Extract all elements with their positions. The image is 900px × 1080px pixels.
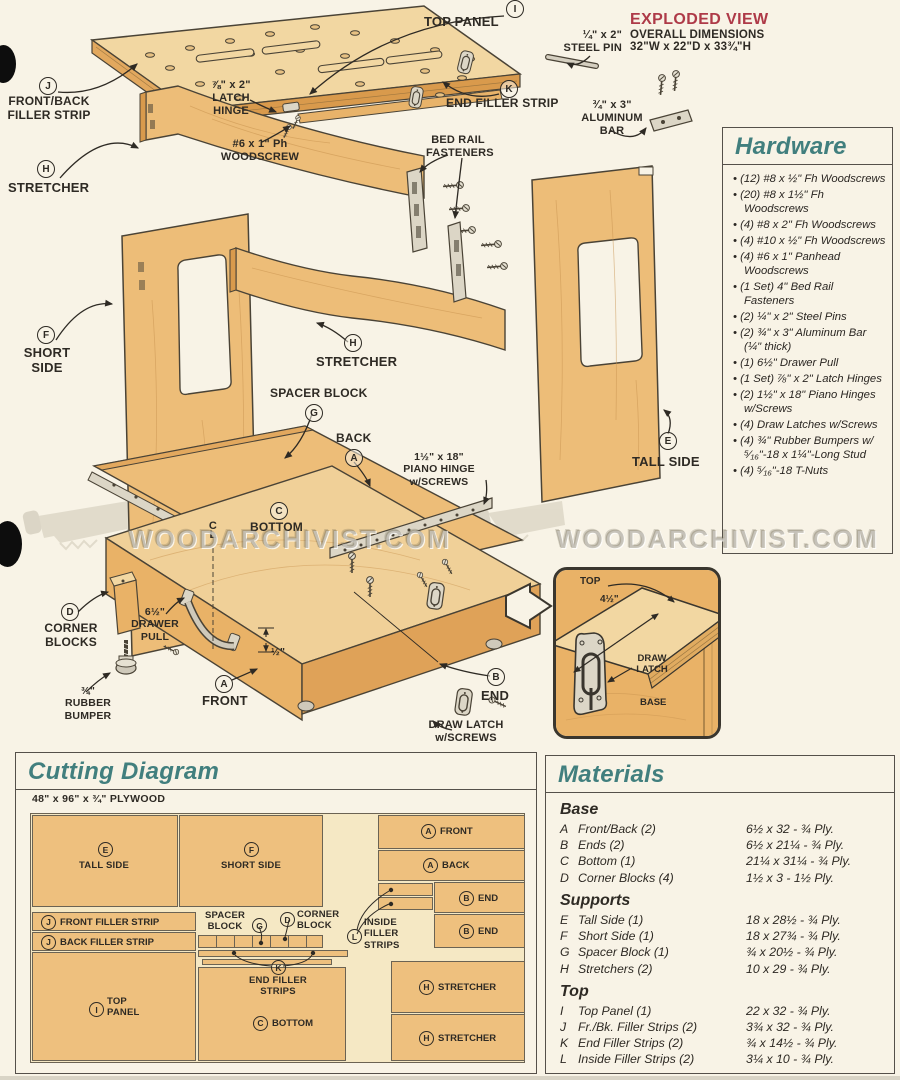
inset-dim-label: 4½": [600, 594, 619, 606]
inset-top-label: TOP: [580, 576, 600, 588]
materials-letter: J: [560, 1019, 578, 1035]
sheet-letter-corner-block: D: [280, 912, 295, 927]
sheet-label-front-text: FRONT: [440, 826, 473, 837]
materials-dims: 10 x 29 - ¾ Ply.: [746, 961, 880, 977]
sheet-letter-short-side: F: [244, 842, 259, 857]
sheet-label-corner-block: CORNER BLOCK: [297, 909, 349, 932]
materials-letter: H: [560, 961, 578, 977]
hardware-item: (4) Draw Latches w/Screws: [733, 418, 886, 432]
sheet-label-end-2: B END: [459, 924, 498, 939]
materials-dims: 3¼ x 10 - ¾ Ply.: [746, 1051, 880, 1067]
hardware-item: (4) #8 x 2" Fh Woodscrews: [733, 218, 886, 232]
plywood-sheet-label: 48" x 96" x ¾" PLYWOOD: [32, 793, 536, 805]
materials-dims: ¾ x 20½ - ¾ Ply.: [746, 944, 880, 960]
hardware-item: (1 Set) 4" Bed Rail Fasteners: [733, 280, 886, 308]
callout-top-panel: TOP PANEL: [424, 14, 499, 29]
callout-front: FRONT: [202, 693, 248, 708]
sheet-label-back: A BACK: [423, 858, 469, 873]
callout-short-side: SHORT SIDE: [20, 345, 74, 376]
materials-title: Materials: [546, 756, 894, 793]
materials-letter: G: [560, 944, 578, 960]
sheet-letter-back-filler: J: [41, 935, 56, 950]
sheet-letter-spacer-block: G: [252, 918, 267, 933]
materials-part-name: Top Panel (1): [578, 1003, 746, 1019]
materials-row: I Top Panel (1) 22 x 32 - ¾ Ply.: [560, 1003, 880, 1019]
sheet-label-end-1-text: END: [478, 893, 498, 904]
aluminum-bar-shape: [650, 70, 692, 131]
materials-dims: 18 x 28½ - ¾ Ply.: [746, 912, 880, 928]
materials-section-supports: Supports: [560, 892, 880, 910]
sheet-letter-end-1: B: [459, 891, 474, 906]
callout-drawer-pull: 6½" DRAWER PULL: [126, 606, 184, 643]
callout-corner-blocks: CORNER BLOCKS: [38, 621, 104, 649]
callout-half-inch-dim: ½": [271, 646, 285, 658]
watermark-text: WOODARCHIVIST.COM: [556, 524, 879, 555]
materials-letter: C: [560, 853, 578, 869]
callout-letter-spacer-block: G: [305, 404, 323, 422]
sheet-label-inside-filler: INSIDE FILLER STRIPS: [364, 917, 400, 951]
callout-latch-hinge: ⅞" x 2" LATCH HINGE: [194, 79, 268, 118]
sheet-letter-front-filler: J: [41, 915, 56, 930]
callout-aluminum-bar: ¾" x 3" ALUMINUM BAR: [580, 99, 644, 138]
inset-draw-latch-label: DRAW LATCH: [628, 654, 676, 676]
hardware-title: Hardware: [723, 128, 892, 165]
callout-letter-short-side: F: [37, 326, 55, 344]
sheet-label-back-filler: J BACK FILLER STRIP: [41, 935, 154, 950]
materials-letter: B: [560, 837, 578, 853]
materials-row: B Ends (2) 6½ x 21¼ - ¾ Ply.: [560, 837, 880, 853]
materials-letter: F: [560, 928, 578, 944]
inset-base-label: BASE: [640, 698, 666, 709]
cutting-diagram-title: Cutting Diagram: [16, 753, 536, 790]
materials-row: K End Filler Strips (2) ¾ x 14½ - ¾ Ply.: [560, 1035, 880, 1051]
sheet-label-stretcher-1-text: STRETCHER: [438, 982, 496, 993]
sheet-letter-back: A: [423, 858, 438, 873]
materials-part-name: End Filler Strips (2): [578, 1035, 746, 1051]
sheet-label-spacer-block: SPACER BLOCK: [199, 910, 251, 933]
materials-dims: 1½ x 3 - 1½ Ply.: [746, 870, 880, 886]
materials-section-base: Base: [560, 801, 880, 819]
sheet-label-front-filler: J FRONT FILLER STRIP: [41, 915, 159, 930]
callout-letter-bottom: C: [270, 502, 288, 520]
hardware-item: (1 Set) ⅞" x 2" Latch Hinges: [733, 372, 886, 386]
bed-rail-fasteners-shape: [407, 168, 508, 302]
sheet-label-bottom-text: BOTTOM: [272, 1018, 313, 1029]
sheet-letter-stretcher-2: H: [419, 1031, 434, 1046]
callout-tall-side: TALL SIDE: [632, 454, 700, 469]
callout-letter-tall-side: E: [659, 432, 677, 450]
callout-piano-hinge: 1½" x 18" PIANO HINGE w/SCREWS: [396, 451, 482, 488]
overall-dimensions-label: OVERALL DIMENSIONS: [630, 29, 764, 41]
sheet-label-back-text: BACK: [442, 860, 469, 871]
sheet-label-front-filler-text: FRONT FILLER STRIP: [60, 917, 159, 928]
hardware-item: (2) ¼" x 2" Steel Pins: [733, 310, 886, 324]
materials-part-name: Tall Side (1): [578, 912, 746, 928]
materials-part-name: Front/Back (2): [578, 821, 746, 837]
materials-part-name: Stretchers (2): [578, 961, 746, 977]
callout-letter-front: A: [215, 675, 233, 693]
materials-row: A Front/Back (2) 6½ x 32 - ¾ Ply.: [560, 821, 880, 837]
hardware-item: (2) ¾" x 3" Aluminum Bar (¼" thick): [733, 326, 886, 354]
callout-letter-front-back-filler: J: [39, 77, 57, 95]
hardware-item: (4) ¾" Rubber Bumpers w/⁵⁄₁₆"-18 x 1¼"-L…: [733, 434, 886, 462]
materials-dims: ¾ x 14½ - ¾ Ply.: [746, 1035, 880, 1051]
overall-dimensions-value: 32"W x 22"D x 33¾"H: [630, 41, 751, 53]
materials-row: D Corner Blocks (4) 1½ x 3 - 1½ Ply.: [560, 870, 880, 886]
materials-letter: A: [560, 821, 578, 837]
materials-dims: 18 x 27¾ - ¾ Ply.: [746, 928, 880, 944]
callout-letter-stretcher-left: H: [37, 160, 55, 178]
materials-part-name: Spacer Block (1): [578, 944, 746, 960]
materials-row: C Bottom (1) 21¼ x 31¼ - ¾ Ply.: [560, 853, 880, 869]
sheet-label-top-panel: TOP PANEL: [107, 996, 140, 1019]
materials-letter: D: [560, 870, 578, 886]
sheet-label-bottom: C BOTTOM: [253, 1016, 313, 1031]
materials-row: J Fr./Bk. Filler Strips (2) 3¾ x 32 - ¾ …: [560, 1019, 880, 1035]
materials-dims: 21¼ x 31¼ - ¾ Ply.: [746, 853, 880, 869]
sheet-letter-inside-filler: L: [347, 929, 362, 944]
materials-dims: 6½ x 21¼ - ¾ Ply.: [746, 837, 880, 853]
detail-inset: TOP 4½" DRAW LATCH BASE: [553, 567, 721, 739]
callout-spacer-block: SPACER BLOCK: [270, 386, 368, 400]
hardware-item: (4) #6 x 1" Panhead Woodscrews: [733, 250, 886, 278]
callout-back: BACK: [336, 431, 371, 445]
sheet-letter-front: A: [421, 824, 436, 839]
materials-part-name: Short Side (1): [578, 928, 746, 944]
materials-body: Base A Front/Back (2) 6½ x 32 - ¾ Ply. B…: [546, 793, 894, 1070]
plan-page: EXPLODED VIEW OVERALL DIMENSIONS 32"W x …: [0, 0, 900, 1080]
materials-letter: L: [560, 1051, 578, 1067]
callout-stretcher-mid: STRETCHER: [316, 354, 397, 369]
sheet-label-back-filler-text: BACK FILLER STRIP: [60, 937, 154, 948]
sheet-label-end-filler: END FILLER STRIPS: [245, 975, 311, 998]
page-bottom-edge: [0, 1076, 900, 1080]
sheet-label-end-2-text: END: [478, 926, 498, 937]
watermark-text: WOODARCHIVIST.COM: [128, 524, 451, 555]
sheet-letter-stretcher-1: H: [419, 980, 434, 995]
sheet-label-stretcher-2-text: STRETCHER: [438, 1033, 496, 1044]
exploded-view-title: EXPLODED VIEW: [630, 11, 769, 29]
callout-letter-end: B: [487, 668, 505, 686]
materials-panel: Materials Base A Front/Back (2) 6½ x 32 …: [545, 755, 895, 1074]
callout-letter-back: A: [345, 449, 363, 467]
materials-letter: I: [560, 1003, 578, 1019]
callout-end: END: [481, 688, 509, 703]
callout-letter-stretcher-mid: H: [344, 334, 362, 352]
callout-letter-corner-blocks: D: [61, 603, 79, 621]
hardware-item: (4) ⁵⁄₁₆"-18 T-Nuts: [733, 464, 886, 478]
callout-front-back-filler: FRONT/BACK FILLER STRIP: [2, 94, 96, 122]
sheet-label-short-side: SHORT SIDE: [179, 860, 323, 871]
sheet-letter-tall-side: E: [98, 842, 113, 857]
materials-dims: 6½ x 32 - ¾ Ply.: [746, 821, 880, 837]
callout-bed-rail-fasteners: BED RAIL FASTENERS: [426, 134, 490, 160]
sheet-label-tall-side: TALL SIDE: [31, 860, 177, 871]
callout-steel-pin: ¼" x 2" STEEL PIN: [556, 29, 622, 55]
materials-row: L Inside Filler Strips (2) 3¼ x 10 - ¾ P…: [560, 1051, 880, 1067]
materials-dims: 22 x 32 - ¾ Ply.: [746, 1003, 880, 1019]
materials-row: H Stretchers (2) 10 x 29 - ¾ Ply.: [560, 961, 880, 977]
callout-letter-top-panel: I: [506, 0, 524, 18]
sheet-letter-end-2: B: [459, 924, 474, 939]
callout-end-filler-strip: END FILLER STRIP: [446, 96, 559, 110]
materials-row: E Tall Side (1) 18 x 28½ - ¾ Ply.: [560, 912, 880, 928]
sheet-label-end-1: B END: [459, 891, 498, 906]
materials-part-name: Inside Filler Strips (2): [578, 1051, 746, 1067]
materials-part-name: Ends (2): [578, 837, 746, 853]
materials-letter: E: [560, 912, 578, 928]
materials-part-name: Fr./Bk. Filler Strips (2): [578, 1019, 746, 1035]
hardware-item: (20) #8 x 1½" Fh Woodscrews: [733, 188, 886, 216]
sheet-label-front: A FRONT: [421, 824, 473, 839]
plywood-sheet: E TALL SIDE F SHORT SIDE A FRONT A BACK …: [30, 813, 525, 1063]
materials-dims: 3¾ x 32 - ¾ Ply.: [746, 1019, 880, 1035]
materials-letter: K: [560, 1035, 578, 1051]
materials-part-name: Corner Blocks (4): [578, 870, 746, 886]
callout-woodscrew: #6 x 1" Ph WOODSCREW: [220, 138, 300, 164]
hardware-item: (1) 6½" Drawer Pull: [733, 356, 886, 370]
hardware-list: (12) #8 x ½" Fh Woodscrews (20) #8 x 1½"…: [723, 172, 892, 478]
sheet-label-stretcher-2: H STRETCHER: [419, 1031, 496, 1046]
hardware-item: (12) #8 x ½" Fh Woodscrews: [733, 172, 886, 186]
materials-row: G Spacer Block (1) ¾ x 20½ - ¾ Ply.: [560, 944, 880, 960]
callout-rubber-bumper: ¾" RUBBER BUMPER: [58, 685, 118, 722]
hardware-item: (4) #10 x ½" Fh Woodscrews: [733, 234, 886, 248]
callout-stretcher-left: STRETCHER: [8, 180, 89, 195]
materials-row: F Short Side (1) 18 x 27¾ - ¾ Ply.: [560, 928, 880, 944]
materials-part-name: Bottom (1): [578, 853, 746, 869]
hardware-item: (2) 1½" x 18" Piano Hinges w/Screws: [733, 388, 886, 416]
sheet-letter-top-panel: I: [89, 1002, 104, 1017]
hardware-panel: Hardware (12) #8 x ½" Fh Woodscrews (20)…: [722, 127, 893, 554]
tall-side-shape: [532, 166, 660, 502]
materials-section-top: Top: [560, 983, 880, 1001]
sheet-letter-end-filler: K: [271, 960, 286, 975]
sheet-label-stretcher-1: H STRETCHER: [419, 980, 496, 995]
callout-draw-latch: DRAW LATCH w/SCREWS: [423, 719, 509, 745]
sheet-letter-bottom: C: [253, 1016, 268, 1031]
